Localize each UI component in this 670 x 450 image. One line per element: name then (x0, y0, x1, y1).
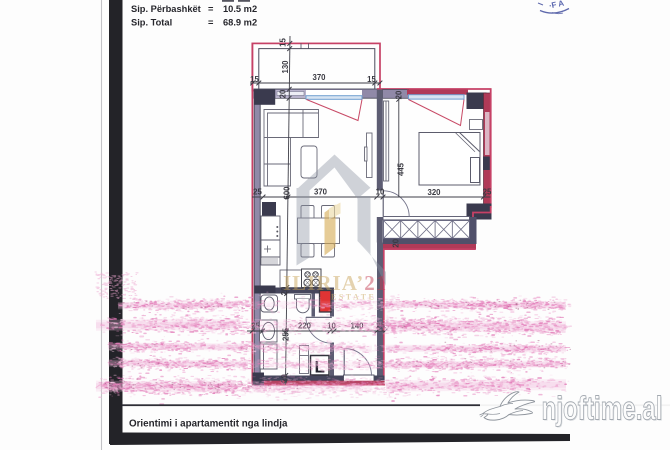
svg-text:600: 600 (282, 186, 291, 200)
svg-text:15: 15 (250, 75, 259, 84)
svg-text:njoftime.al: njoftime.al (542, 390, 663, 427)
svg-text:Sip. Total: Sip. Total (131, 18, 172, 28)
svg-text:10: 10 (376, 188, 385, 197)
svg-text:25: 25 (483, 188, 492, 197)
svg-text:20: 20 (392, 238, 401, 247)
svg-text:=: = (208, 4, 214, 14)
svg-text:Orientimi i apartamentit nga l: Orientimi i apartamentit nga lindja (129, 419, 288, 430)
svg-text:=: = (208, 18, 214, 28)
svg-text:10.5 m2: 10.5 m2 (223, 4, 257, 14)
svg-text:Sip. Përbashkët: Sip. Përbashkët (131, 4, 201, 14)
svg-text:68.9 m2: 68.9 m2 (223, 18, 257, 28)
svg-text:320: 320 (427, 188, 441, 197)
svg-text:370: 370 (312, 73, 326, 82)
svg-text:20: 20 (395, 90, 404, 99)
svg-text:20: 20 (279, 89, 288, 98)
svg-text:15: 15 (279, 38, 288, 47)
svg-text:25: 25 (253, 188, 262, 197)
svg-text:ILIRIA’21: ILIRIA’21 (283, 271, 387, 295)
svg-text:445: 445 (397, 162, 406, 176)
svg-text:370: 370 (314, 188, 328, 197)
svg-text:130: 130 (281, 60, 290, 74)
svg-text:15: 15 (367, 75, 376, 84)
